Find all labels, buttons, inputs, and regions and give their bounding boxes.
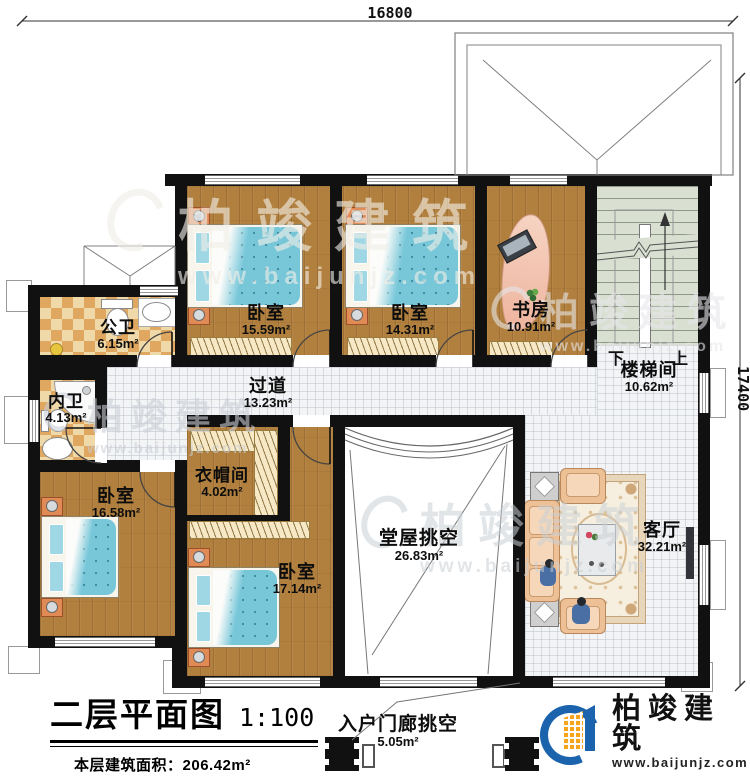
room-label-living-room: 客厅 32.21m² bbox=[638, 520, 686, 555]
brand-url: www.baijunjz.com bbox=[612, 755, 750, 770]
room-label-study: 书房 10.91m² bbox=[507, 300, 555, 335]
title-underline bbox=[50, 740, 318, 747]
room-label-public-bath: 公卫 6.15m² bbox=[97, 318, 138, 352]
room-area: 10.91m² bbox=[507, 320, 555, 335]
plan-scale: 1:100 bbox=[239, 703, 314, 732]
room-name: 卧室 bbox=[386, 303, 434, 323]
room-name: 楼梯间 bbox=[621, 360, 678, 380]
logo-slab-icon bbox=[585, 705, 595, 751]
room-area: 17.14m² bbox=[273, 582, 321, 597]
room-area: 4.13m² bbox=[45, 411, 86, 426]
room-label-cloakroom: 衣帽间 4.02m² bbox=[195, 466, 249, 500]
title-block: 二层平面图1:100 本层建筑面积：206.42m² 层高：3.3m bbox=[50, 688, 318, 781]
floor-area-value: 206.42m² bbox=[183, 757, 251, 774]
room-name: 卧室 bbox=[242, 303, 290, 323]
floor-area-line: 本层建筑面积：206.42m² bbox=[50, 754, 318, 775]
room-area: 13.23m² bbox=[244, 396, 292, 411]
room-label-stairwell: 楼梯间 10.62m² bbox=[621, 360, 678, 395]
room-name: 公卫 bbox=[97, 318, 138, 337]
room-label-bedroom3: 卧室 16.58m² bbox=[92, 486, 140, 521]
room-area: 6.15m² bbox=[97, 337, 138, 352]
room-label-hall-void: 堂屋挑空 26.83m² bbox=[379, 528, 459, 564]
room-area: 26.83m² bbox=[379, 549, 459, 564]
room-name: 卧室 bbox=[92, 486, 140, 506]
room-name: 书房 bbox=[507, 300, 555, 320]
room-name: 过道 bbox=[244, 376, 292, 396]
room-label-bedroom1: 卧室 15.59m² bbox=[242, 303, 290, 338]
room-name: 内卫 bbox=[45, 392, 86, 411]
room-area: 15.59m² bbox=[242, 323, 290, 338]
room-name: 客厅 bbox=[638, 520, 686, 540]
dimension-right: 17400 bbox=[734, 366, 750, 411]
room-area: 10.62m² bbox=[621, 380, 678, 395]
room-name: 堂屋挑空 bbox=[379, 528, 459, 549]
brand-logo-icon bbox=[540, 697, 604, 767]
brand-logo: 柏竣建筑 www.baijunjz.com bbox=[540, 694, 750, 770]
brand-name: 柏竣建筑 bbox=[612, 694, 750, 755]
room-area: 16.58m² bbox=[92, 506, 140, 521]
floor-plan-canvas: 下 上 bbox=[0, 0, 750, 781]
room-area: 4.02m² bbox=[195, 485, 249, 500]
room-label-porch-void: 入户门廊挑空 5.05m² bbox=[338, 714, 458, 750]
room-name: 入户门廊挑空 bbox=[338, 714, 458, 735]
room-area: 5.05m² bbox=[338, 735, 458, 750]
dimension-top: 16800 bbox=[367, 4, 412, 22]
room-label-corridor: 过道 13.23m² bbox=[244, 376, 292, 411]
floor-area-label: 本层建筑面积： bbox=[74, 757, 183, 774]
plan-title: 二层平面图 bbox=[50, 696, 225, 733]
room-label-bedroom4: 卧室 17.14m² bbox=[273, 562, 321, 597]
room-area: 14.31m² bbox=[386, 323, 434, 338]
room-label-private-bath: 内卫 4.13m² bbox=[45, 392, 86, 426]
room-name: 卧室 bbox=[273, 562, 321, 582]
room-label-bedroom2: 卧室 14.31m² bbox=[386, 303, 434, 338]
room-name: 衣帽间 bbox=[195, 466, 249, 485]
room-area: 32.21m² bbox=[638, 540, 686, 555]
